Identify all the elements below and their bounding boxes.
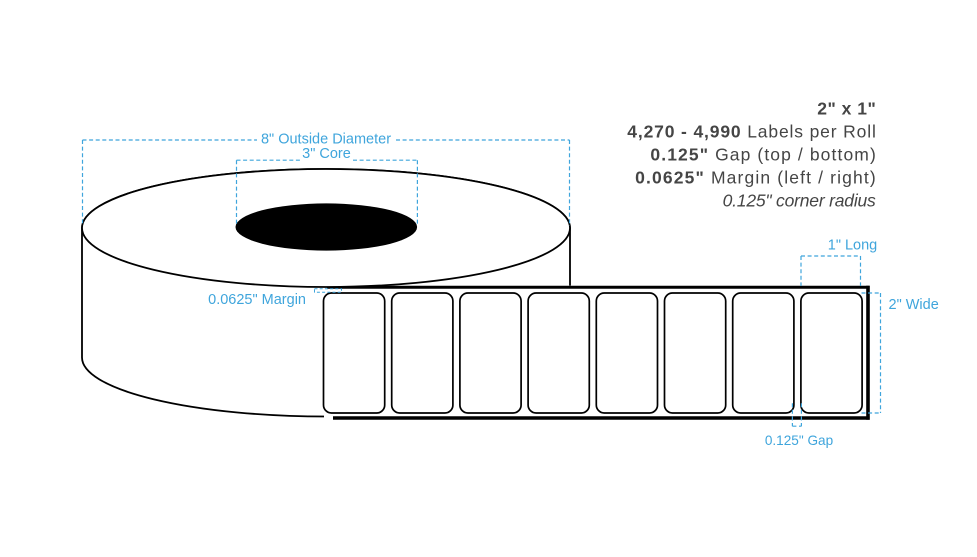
svg-text:0.125" Gap (top / bottom): 0.125" Gap (top / bottom)	[650, 145, 876, 165]
svg-text:2" x 1": 2" x 1"	[817, 99, 876, 119]
svg-text:4,270 - 4,990 Labels per Roll: 4,270 - 4,990 Labels per Roll	[627, 122, 876, 142]
svg-text:3" Core: 3" Core	[302, 146, 351, 162]
svg-text:0.125" Gap: 0.125" Gap	[765, 433, 833, 448]
svg-text:0.0625" Margin: 0.0625" Margin	[208, 292, 306, 308]
svg-text:0.0625" Margin (left / right): 0.0625" Margin (left / right)	[635, 168, 877, 188]
svg-text:0.125" corner radius: 0.125" corner radius	[723, 191, 876, 211]
svg-text:2" Wide: 2" Wide	[889, 297, 939, 313]
svg-text:1" Long: 1" Long	[828, 237, 878, 253]
svg-text:8" Outside Diameter: 8" Outside Diameter	[261, 132, 391, 148]
